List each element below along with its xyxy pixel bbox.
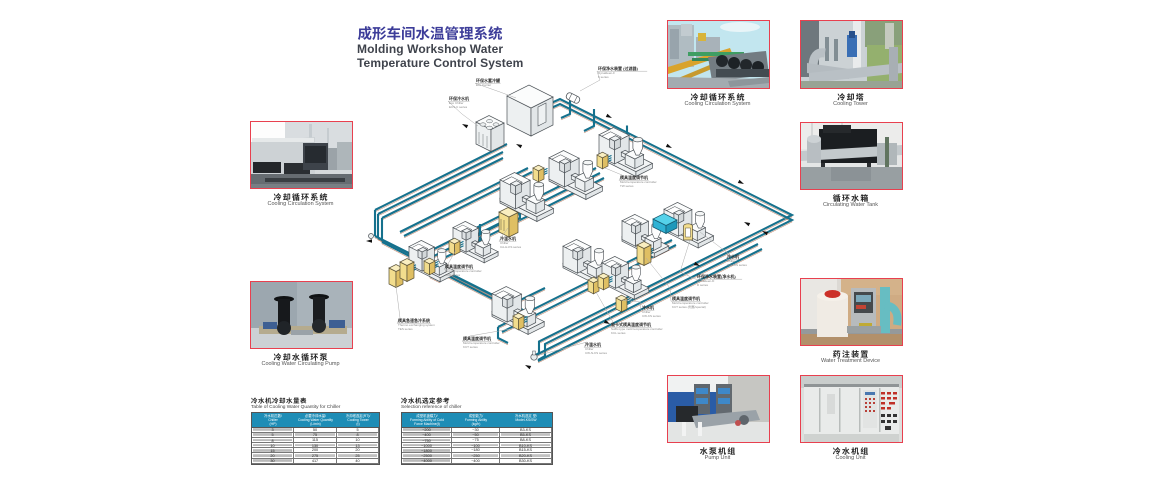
svg-text:模具温度调节机: 模具温度调节机 — [620, 174, 648, 180]
svg-text:KCT series (附属/special): KCT series (附属/special) — [672, 304, 706, 309]
svg-text:环保净水装置(净水机): 环保净水装置(净水机) — [697, 273, 736, 279]
svg-text:KCT series: KCT series — [463, 345, 478, 349]
svg-text:KCD series: KCD series — [445, 273, 461, 277]
svg-text:冷水机: 冷水机 — [727, 253, 739, 259]
svg-text:TW series: TW series — [620, 184, 634, 188]
svg-text:D series: D series — [697, 283, 709, 287]
svg-text:CW-KS series: CW-KS series — [642, 314, 661, 318]
svg-text:CA-H-KS series: CA-H-KS series — [500, 245, 522, 249]
svg-text:冷温水机: 冷温水机 — [585, 341, 601, 347]
svg-text:F series: F series — [598, 75, 609, 79]
svg-text:Eco Carrier: Eco Carrier — [476, 83, 491, 87]
svg-text:TES series: TES series — [398, 327, 413, 331]
svg-text:CW-N-KS series: CW-N-KS series — [585, 351, 607, 355]
svg-text:冷水机: 冷水机 — [642, 304, 654, 310]
svg-text:模具温度调节机: 模具温度调节机 — [445, 263, 473, 269]
svg-text:环保水蓄冷罐: 环保水蓄冷罐 — [476, 77, 500, 83]
svg-text:冷温水机: 冷温水机 — [500, 235, 516, 241]
svg-text:吸卡式模具温度调节机: 吸卡式模具温度调节机 — [611, 321, 651, 327]
svg-text:环保净水装置 (过滤器): 环保净水装置 (过滤器) — [598, 65, 638, 71]
svg-text:KCL series: KCL series — [611, 331, 626, 335]
svg-text:模具温度调节机: 模具温度调节机 — [463, 335, 491, 341]
svg-text:模具急速急冷系统: 模具急速急冷系统 — [398, 317, 430, 323]
svg-text:ECS-C series: ECS-C series — [449, 105, 468, 109]
svg-text:C4H-KS series: C4H-KS series — [727, 263, 747, 267]
svg-text:环保冷水机: 环保冷水机 — [449, 95, 469, 101]
svg-text:模具温度调节机: 模具温度调节机 — [672, 295, 700, 301]
